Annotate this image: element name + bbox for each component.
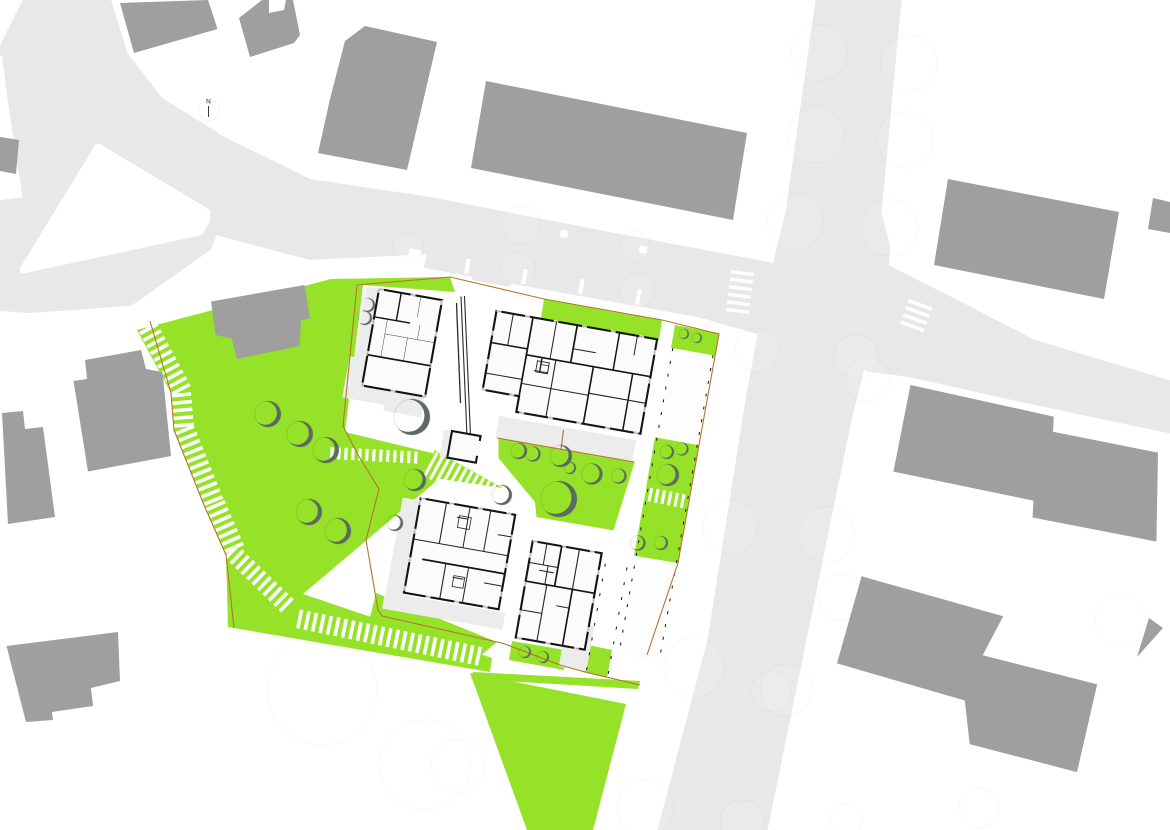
svg-text:N: N — [206, 99, 211, 106]
